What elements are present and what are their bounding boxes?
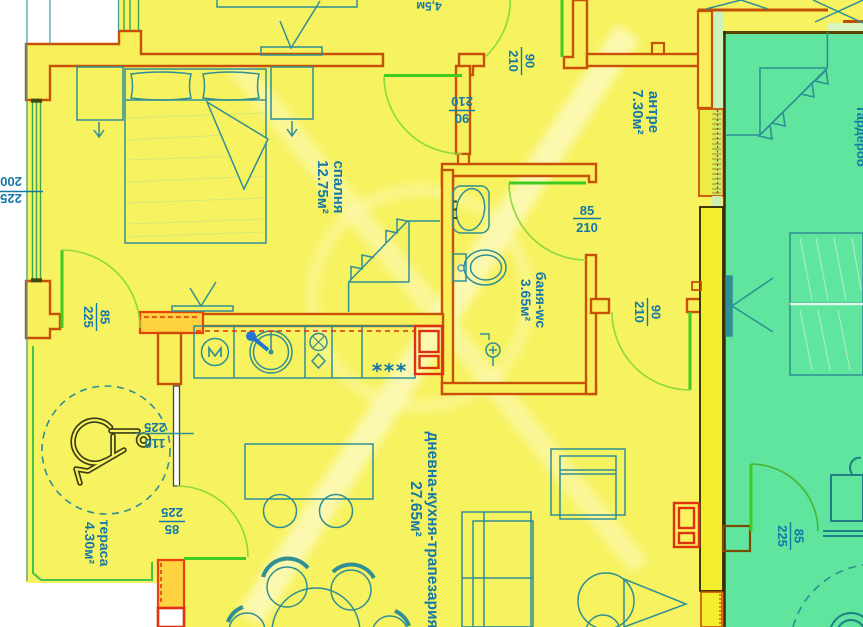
svg-text:85: 85 <box>580 203 594 218</box>
svg-text:90: 90 <box>455 111 469 126</box>
svg-text:210: 210 <box>632 301 647 323</box>
svg-text:дневна-кухня-трапезария: дневна-кухня-трапезария <box>424 431 441 627</box>
svg-text:12.75м²: 12.75м² <box>314 160 331 214</box>
svg-text:4.30м²: 4.30м² <box>82 522 98 565</box>
svg-text:90: 90 <box>649 305 664 319</box>
svg-text:225: 225 <box>775 525 790 547</box>
svg-text:4,5м: 4,5м <box>416 0 442 13</box>
svg-text:баня-wc: баня-wc <box>533 272 549 329</box>
svg-text:гардероб: гардероб <box>854 107 863 167</box>
svg-text:210: 210 <box>451 94 473 109</box>
svg-text:3.65м²: 3.65м² <box>518 279 534 322</box>
svg-text:210: 210 <box>506 50 521 72</box>
svg-text:225: 225 <box>144 420 166 435</box>
svg-text:7.30м²: 7.30м² <box>629 89 646 134</box>
svg-text:110: 110 <box>145 436 166 451</box>
svg-text:спалня: спалня <box>330 160 347 213</box>
svg-text:85: 85 <box>792 529 807 543</box>
svg-text:200: 200 <box>0 174 22 189</box>
svg-text:210: 210 <box>576 220 598 235</box>
svg-text:антре: антре <box>645 91 662 133</box>
svg-text:85: 85 <box>165 522 179 537</box>
svg-text:225: 225 <box>0 191 22 206</box>
svg-text:225: 225 <box>161 505 183 520</box>
svg-text:90: 90 <box>523 54 538 68</box>
svg-text:225: 225 <box>81 306 96 328</box>
svg-text:85: 85 <box>98 310 113 324</box>
svg-text:27.65м²: 27.65м² <box>407 481 424 536</box>
svg-text:тераса: тераса <box>97 520 113 567</box>
